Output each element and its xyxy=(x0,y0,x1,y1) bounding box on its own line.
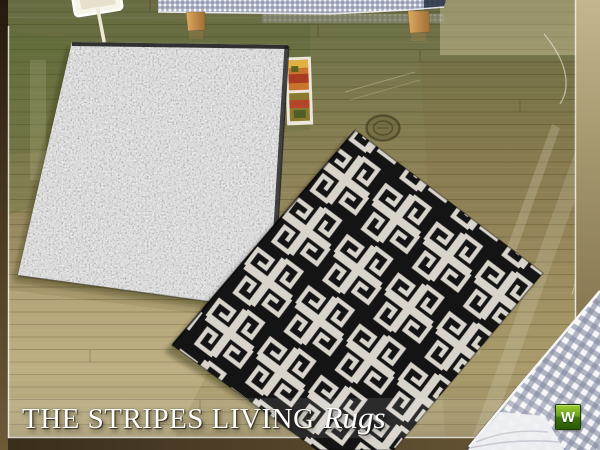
caption-subtitle-script: Rugs xyxy=(324,400,386,435)
scene-graphics xyxy=(0,0,600,450)
tsr-watermark-badge: W xyxy=(555,404,581,430)
sims-rug-screenshot[interactable]: THE STRIPES LIVINGRugs W xyxy=(0,0,600,450)
caption: THE STRIPES LIVINGRugs xyxy=(22,401,386,441)
magazine xyxy=(285,57,313,126)
floor-drain xyxy=(367,116,400,141)
tsr-watermark-letter: W xyxy=(561,409,575,426)
caption-title: THE STRIPES LIVING xyxy=(22,403,315,435)
